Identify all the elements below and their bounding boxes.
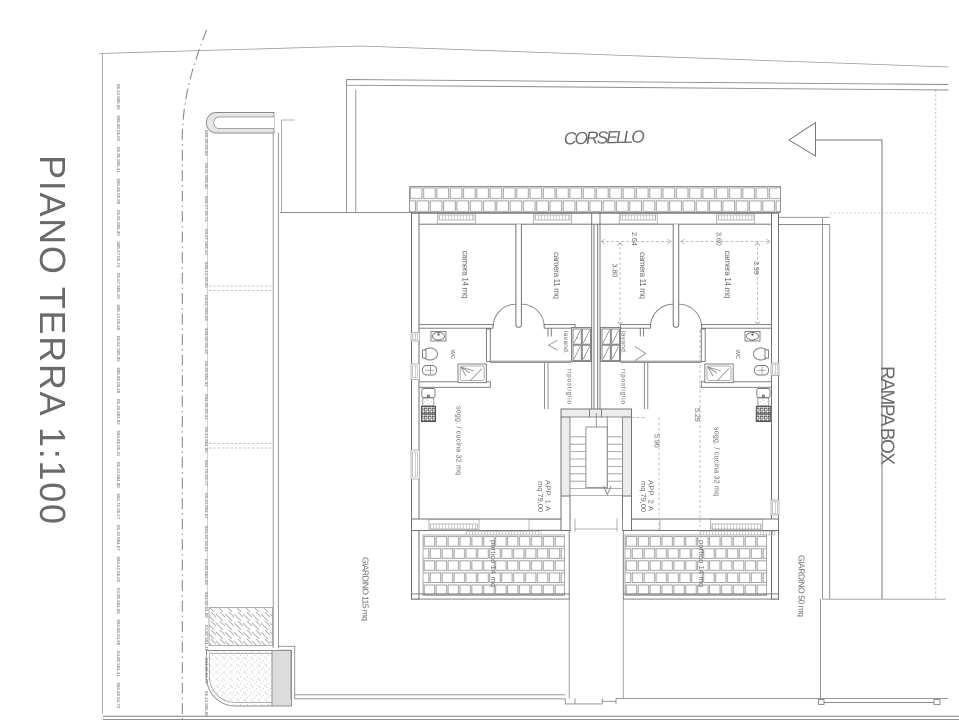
svg-text:04.95 584.55: 04.95 584.55 xyxy=(204,559,209,585)
svg-text:05.38 584.92: 05.38 584.92 xyxy=(204,361,209,387)
svg-text:05.81 585.30: 05.81 585.30 xyxy=(204,163,209,189)
svg-text:585.27 05.74: 585.27 05.74 xyxy=(116,242,121,268)
svg-text:WC: WC xyxy=(449,350,455,360)
svg-text:06.13 585.56: 06.13 585.56 xyxy=(204,691,209,717)
svg-text:584.50 04.88: 584.50 04.88 xyxy=(204,592,209,618)
svg-text:04.80 584.41: 04.80 584.41 xyxy=(204,625,209,651)
svg-text:camera 14 mq: camera 14 mq xyxy=(723,251,732,299)
svg-text:3.60: 3.60 xyxy=(715,232,722,246)
svg-text:GIARDINO 115 mq: GIARDINO 115 mq xyxy=(361,557,371,621)
svg-text:ripostiglio: ripostiglio xyxy=(566,369,573,404)
svg-text:RAMPA BOX: RAMPA BOX xyxy=(876,366,897,466)
svg-text:585.50 06.02: 585.50 06.02 xyxy=(116,116,121,142)
svg-text:06.13 585.56: 06.13 585.56 xyxy=(116,84,121,110)
svg-text:3.80: 3.80 xyxy=(611,264,618,278)
svg-text:05.38 584.92: 05.38 584.92 xyxy=(116,399,121,425)
svg-text:05.52 585.05: 05.52 585.05 xyxy=(116,336,121,362)
svg-text:lavand.: lavand. xyxy=(562,331,569,354)
svg-text:04.80 584.41: 04.80 584.41 xyxy=(116,651,121,677)
svg-text:584.38 04.72: 584.38 04.72 xyxy=(116,683,121,709)
svg-text:sogg. / cucina 32 mq: sogg. / cucina 32 mq xyxy=(455,406,462,475)
svg-text:2.64: 2.64 xyxy=(630,232,637,246)
svg-text:camera 11 mq: camera 11 mq xyxy=(552,252,561,299)
svg-text:584.88 05.31: 584.88 05.31 xyxy=(116,431,121,457)
svg-text:584.50 04.88: 584.50 04.88 xyxy=(116,620,121,646)
svg-text:PIANO TERRA 1:100: PIANO TERRA 1:100 xyxy=(32,155,73,525)
svg-text:584.76 05.17: 584.76 05.17 xyxy=(116,494,121,520)
svg-text:05.24 584.80: 05.24 584.80 xyxy=(116,462,121,488)
svg-text:5.29: 5.29 xyxy=(693,408,700,422)
svg-text:585.35 05.88: 585.35 05.88 xyxy=(116,179,121,205)
svg-text:05.24 584.80: 05.24 584.80 xyxy=(204,427,209,453)
svg-text:3.99: 3.99 xyxy=(752,261,759,275)
svg-text:584.88 05.31: 584.88 05.31 xyxy=(204,394,209,420)
svg-text:lavand.: lavand. xyxy=(620,331,627,354)
svg-text:sogg. / cucina 32 mq: sogg. / cucina 32 mq xyxy=(713,427,720,496)
svg-text:camera 11 mq: camera 11 mq xyxy=(638,252,647,299)
svg-text:585.00 05.45: 585.00 05.45 xyxy=(204,328,209,354)
svg-text:584.76 05.17: 584.76 05.17 xyxy=(204,460,209,486)
svg-text:05.67 585.18: 05.67 585.18 xyxy=(116,273,121,299)
svg-text:585.27 05.74: 585.27 05.74 xyxy=(204,196,209,222)
svg-text:05.10 584.67: 05.10 584.67 xyxy=(204,493,209,519)
svg-text:portico 14 mq: portico 14 mq xyxy=(697,540,706,587)
svg-text:CORSELLO: CORSELLO xyxy=(564,126,646,148)
svg-text:585.00 05.45: 585.00 05.45 xyxy=(116,368,121,394)
svg-text:05.52 585.05: 05.52 585.05 xyxy=(204,295,209,321)
svg-text:5.90: 5.90 xyxy=(653,434,660,448)
svg-text:mq 79,00: mq 79,00 xyxy=(536,481,545,512)
svg-text:05.95 585.41: 05.95 585.41 xyxy=(116,147,121,173)
svg-text:04.95 584.55: 04.95 584.55 xyxy=(116,588,121,614)
svg-text:WC: WC xyxy=(734,350,740,360)
svg-text:portico 14 mq: portico 14 mq xyxy=(489,540,498,587)
svg-text:585.35 05.88: 585.35 05.88 xyxy=(204,130,209,156)
svg-text:584.62 05.02: 584.62 05.02 xyxy=(116,557,121,583)
svg-text:05.81 585.30: 05.81 585.30 xyxy=(116,210,121,236)
svg-text:GIARDINO 50 mq: GIARDINO 50 mq xyxy=(797,555,807,617)
svg-text:584.62 05.02: 584.62 05.02 xyxy=(204,526,209,552)
svg-text:camera 14 mq: camera 14 mq xyxy=(461,251,470,299)
svg-text:05.10 584.67: 05.10 584.67 xyxy=(116,525,121,551)
svg-text:ripostiglio: ripostiglio xyxy=(620,369,627,404)
svg-text:585.12 05.60: 585.12 05.60 xyxy=(204,262,209,288)
svg-text:05.67 585.18: 05.67 585.18 xyxy=(204,229,209,255)
svg-text:585.12 05.60: 585.12 05.60 xyxy=(116,305,121,331)
svg-text:mq 79,00: mq 79,00 xyxy=(639,481,648,512)
